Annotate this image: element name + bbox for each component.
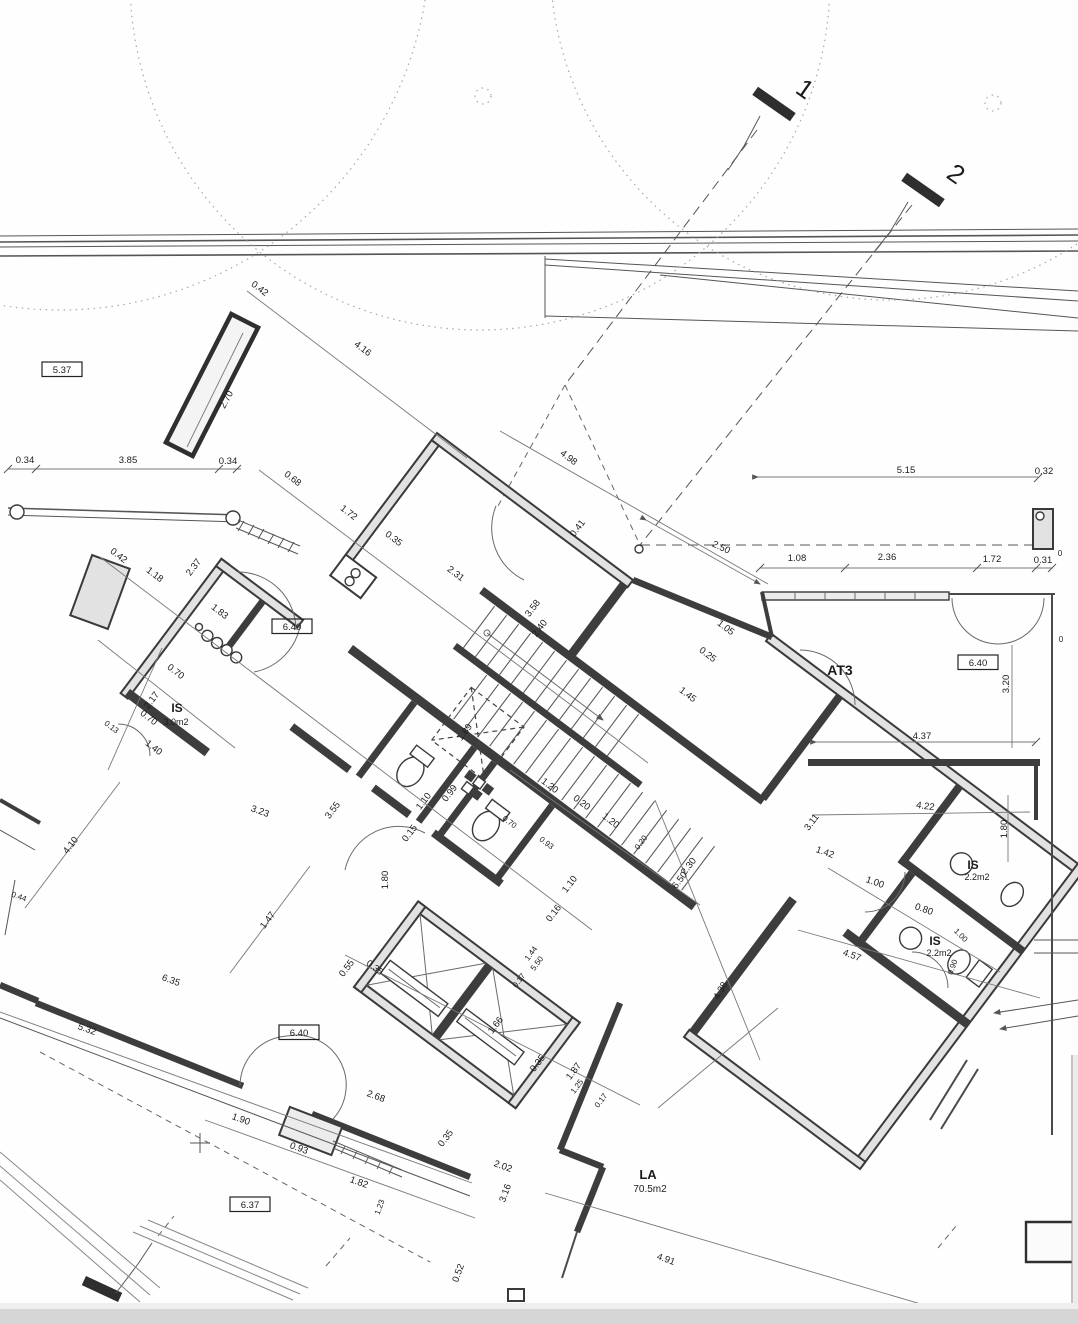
manhole-dot-circle: [985, 95, 1001, 111]
level-marker-label: 6.37: [230, 1197, 270, 1212]
dimension-label: 3.55: [323, 800, 343, 821]
leader-arrows: [994, 940, 1078, 1029]
dimension-label: 2.30: [679, 856, 699, 877]
dimension-label: 1.42: [814, 844, 835, 861]
room-area-is-right-bottom: 2.2m2: [926, 948, 951, 958]
svg-text:1.90: 1.90: [230, 1111, 251, 1128]
svg-text:IS: IS: [967, 858, 978, 872]
svg-text:LA: LA: [639, 1167, 657, 1182]
room-label-at3: AT3: [827, 662, 853, 678]
dimension-label: 0.34: [16, 455, 35, 466]
dimension-label: 0.25: [697, 645, 718, 665]
dimension-label: 1.72: [983, 554, 1002, 565]
svg-text:5.37: 5.37: [53, 365, 72, 376]
dimension-label: 0.35: [383, 529, 404, 549]
svg-text:2.68: 2.68: [365, 1088, 386, 1105]
dimension-label: 2.50: [710, 539, 731, 557]
svg-text:6.35: 6.35: [160, 972, 181, 989]
svg-text:0.17: 0.17: [593, 1091, 610, 1109]
section-marker-1-number: 1: [791, 72, 820, 105]
dimension-label: 1.80: [999, 820, 1010, 839]
svg-text:2.2m2: 2.2m2: [926, 948, 951, 958]
wall: [568, 582, 628, 658]
site-road-lines: [0, 229, 1078, 331]
dimension-label: 2.31: [445, 564, 466, 584]
svg-text:1.72: 1.72: [983, 554, 1002, 565]
dimension-label: 3.58: [523, 598, 543, 619]
dimension-label: 0.13: [103, 719, 121, 736]
svg-text:4.91: 4.91: [655, 1251, 676, 1268]
svg-text:3.0m2: 3.0m2: [163, 717, 188, 727]
elevator-shafts: [354, 901, 580, 1108]
svg-text:6.40: 6.40: [969, 658, 988, 669]
svg-text:6.37: 6.37: [241, 1200, 260, 1211]
dimension-label: 4.37: [913, 731, 932, 742]
right-wing: [546, 634, 1078, 1169]
dimension-label: 1.10: [560, 874, 580, 895]
svg-text:1.45: 1.45: [677, 685, 698, 705]
room-area-is-left: 3.0m2: [163, 717, 188, 727]
svg-text:0.41: 0.41: [568, 518, 588, 539]
svg-text:3.85: 3.85: [119, 455, 138, 466]
dimension-label: 0.70: [165, 662, 186, 682]
dimension-label: 1.18: [144, 565, 165, 585]
svg-text:0.70: 0.70: [165, 662, 186, 682]
svg-text:0.42: 0.42: [249, 279, 270, 299]
dimension-label: 4.91: [655, 1251, 676, 1268]
dimension-label: 2.37: [184, 557, 204, 578]
svg-text:1.20: 1.20: [600, 811, 621, 831]
svg-text:0: 0: [1058, 549, 1063, 558]
wall: [343, 440, 439, 564]
svg-text:2.37: 2.37: [184, 557, 204, 578]
svg-text:2.36: 2.36: [878, 552, 897, 563]
level-marker-label: 6.40: [279, 1025, 319, 1040]
svg-text:5.15: 5.15: [897, 465, 916, 476]
wall: [432, 433, 633, 587]
svg-text:4.22: 4.22: [915, 800, 935, 813]
toilet-fixture: [996, 878, 1028, 911]
svg-text:3.16: 3.16: [497, 1183, 514, 1204]
svg-text:1.18: 1.18: [144, 565, 165, 585]
dimension-label: 1.00: [952, 927, 970, 945]
svg-text:1.42: 1.42: [814, 844, 835, 861]
svg-text:2.31: 2.31: [445, 564, 466, 584]
svg-text:0.70: 0.70: [501, 814, 519, 831]
dimension-label: 1.83: [209, 602, 230, 622]
svg-text:0.35: 0.35: [436, 1128, 456, 1149]
svg-text:0: 0: [1059, 635, 1064, 644]
level-marker-label: 6.40: [272, 619, 312, 634]
dimension-label: 2.68: [365, 1088, 386, 1105]
svg-text:0.31: 0.31: [1034, 555, 1053, 566]
pillar-block: [70, 555, 129, 629]
dimension-label: 0.68: [282, 469, 303, 489]
dimension-label: 3.85: [119, 455, 138, 466]
svg-text:3.20: 3.20: [1001, 675, 1012, 694]
svg-text:4.98: 4.98: [558, 448, 579, 468]
room-label-is-right-bottom: IS: [929, 934, 940, 948]
dimension-label: 4.16: [352, 339, 373, 359]
dimension-label: 4.57: [841, 947, 862, 964]
dimension-label: 0.42: [249, 279, 270, 299]
svg-text:1.82: 1.82: [348, 1174, 369, 1191]
dimension-label: 1.80: [380, 871, 391, 890]
svg-text:3.23: 3.23: [249, 803, 270, 820]
dimension-label: 0.35: [436, 1128, 456, 1149]
dimension-label: 3.20: [1001, 675, 1012, 694]
dimension-label: 2.36: [878, 552, 897, 563]
svg-text:1.00: 1.00: [952, 927, 970, 945]
svg-text:2.50: 2.50: [710, 539, 731, 557]
dimension-label: 1.90: [230, 1111, 251, 1128]
dimension-label: 0.34: [219, 456, 238, 467]
dimension-label: 0.41: [568, 518, 588, 539]
svg-text:4.37: 4.37: [913, 731, 932, 742]
section-marker-bottom: [82, 1216, 174, 1302]
dimension-label: 0.17: [593, 1091, 610, 1109]
svg-text:2.30: 2.30: [679, 856, 699, 877]
dimension-label: 1.00: [864, 874, 885, 891]
dimension-label: 4.98: [558, 448, 579, 468]
svg-text:0.34: 0.34: [219, 456, 238, 467]
site-lines-bottom-left: [0, 1133, 308, 1302]
svg-text:4.16: 4.16: [352, 339, 373, 359]
dimension-label: 0.52: [450, 1263, 467, 1284]
dimension-label: 4.22: [915, 800, 935, 813]
svg-text:6.40: 6.40: [290, 1028, 309, 1039]
room-label-is-right-top: IS: [967, 858, 978, 872]
svg-text:0.15: 0.15: [400, 823, 420, 844]
room-area-la: 70.5m2: [633, 1184, 667, 1195]
dimension-label: 0.55: [337, 958, 357, 979]
svg-text:0.55: 0.55: [337, 958, 357, 979]
manhole-dot-circle: [475, 88, 491, 104]
dimension-label: 1.87: [564, 1061, 584, 1082]
svg-text:0.25: 0.25: [697, 645, 718, 665]
dimension-label: 0: [1058, 549, 1063, 558]
svg-text:1.72: 1.72: [338, 503, 359, 523]
svg-text:1.87: 1.87: [564, 1061, 584, 1082]
svg-text:1.80: 1.80: [380, 871, 391, 890]
floor-plan-sheet: 1 2: [0, 0, 1078, 1324]
svg-text:0.20: 0.20: [571, 793, 592, 813]
level-marker-label: 6.40: [958, 655, 998, 670]
dimension-label: 1.20: [600, 811, 621, 831]
svg-text:4.57: 4.57: [841, 947, 862, 964]
svg-text:1.80: 1.80: [999, 820, 1010, 839]
svg-text:0.93: 0.93: [538, 835, 556, 852]
svg-text:1.83: 1.83: [209, 602, 230, 622]
floor-plan-drawing: 1 2: [0, 0, 1078, 1324]
dimension-label: 1.72: [338, 503, 359, 523]
dimension-label: 1.40: [143, 738, 164, 758]
dimension-label: 2.02: [492, 1158, 513, 1175]
dimension-label: 0.44: [10, 890, 28, 904]
level-marker-label: 5.37: [42, 362, 82, 377]
svg-text:70.5m2: 70.5m2: [633, 1184, 667, 1195]
dimension-label: 6.35: [160, 972, 181, 989]
room-label-la: LA: [639, 1167, 657, 1182]
svg-text:0.13: 0.13: [103, 719, 121, 736]
svg-text:AT3: AT3: [827, 662, 853, 678]
dimension-label: 1.08: [788, 553, 807, 564]
svg-text:0.52: 0.52: [450, 1263, 467, 1284]
dimension-label: 0.80: [913, 901, 934, 918]
dimension-label: 0.93: [538, 835, 556, 852]
svg-text:2.2m2: 2.2m2: [964, 872, 989, 882]
terrace-bottom-wall: [808, 759, 1040, 766]
svg-text:6.40: 6.40: [283, 622, 302, 633]
dimension-label: 0.20: [571, 793, 592, 813]
svg-text:IS: IS: [171, 701, 182, 715]
dimension-labels: 0.424.162.705.370.343.850.340.681.720.35…: [10, 279, 1064, 1284]
dimension-label: 3.23: [249, 803, 270, 820]
left-annex: [121, 559, 306, 756]
svg-text:0.32: 0.32: [1035, 466, 1054, 477]
svg-text:1.00: 1.00: [864, 874, 885, 891]
svg-text:IS: IS: [929, 934, 940, 948]
section-marker-2: 2: [874, 157, 971, 252]
tree-canopy-arcs: [0, 0, 1078, 330]
svg-text:0.35: 0.35: [383, 529, 404, 549]
legend-box: [1026, 1222, 1072, 1262]
dimension-lines: [0, 291, 1056, 1318]
svg-text:1.23: 1.23: [373, 1198, 387, 1216]
svg-text:0.44: 0.44: [10, 890, 28, 904]
planter-wall: [166, 314, 258, 456]
la-door-jamb: [508, 1289, 524, 1301]
dimension-label: 1.45: [677, 685, 698, 705]
dimension-label: 0: [1059, 635, 1064, 644]
washbasin: [194, 622, 204, 632]
svg-text:0.80: 0.80: [913, 901, 934, 918]
svg-text:3.58: 3.58: [523, 598, 543, 619]
dimension-label: 3.16: [497, 1183, 514, 1204]
washbasin: [895, 923, 926, 954]
svg-text:1.40: 1.40: [143, 738, 164, 758]
room-area-is-right-top: 2.2m2: [964, 872, 989, 882]
svg-text:0.68: 0.68: [282, 469, 303, 489]
dimension-label: 0.32: [1035, 466, 1054, 477]
dimension-label: 1.23: [373, 1198, 387, 1216]
stairs: [348, 545, 772, 910]
svg-text:1.08: 1.08: [788, 553, 807, 564]
svg-text:3.55: 3.55: [323, 800, 343, 821]
dimension-label: 1.82: [348, 1174, 369, 1191]
svg-text:1.10: 1.10: [560, 874, 580, 895]
room-label-is-left: IS: [171, 701, 182, 715]
dimension-label: 5.15: [897, 465, 916, 476]
dimension-label: 0.31: [1034, 555, 1053, 566]
dimension-label: 0.15: [400, 823, 420, 844]
section-marker-2-number: 2: [942, 157, 971, 190]
svg-text:0.34: 0.34: [16, 455, 35, 466]
section-marker-1: 1: [728, 72, 820, 170]
svg-text:2.02: 2.02: [492, 1158, 513, 1175]
dimension-label: 0.70: [501, 814, 519, 831]
stair-direction-arrow: [487, 633, 603, 720]
